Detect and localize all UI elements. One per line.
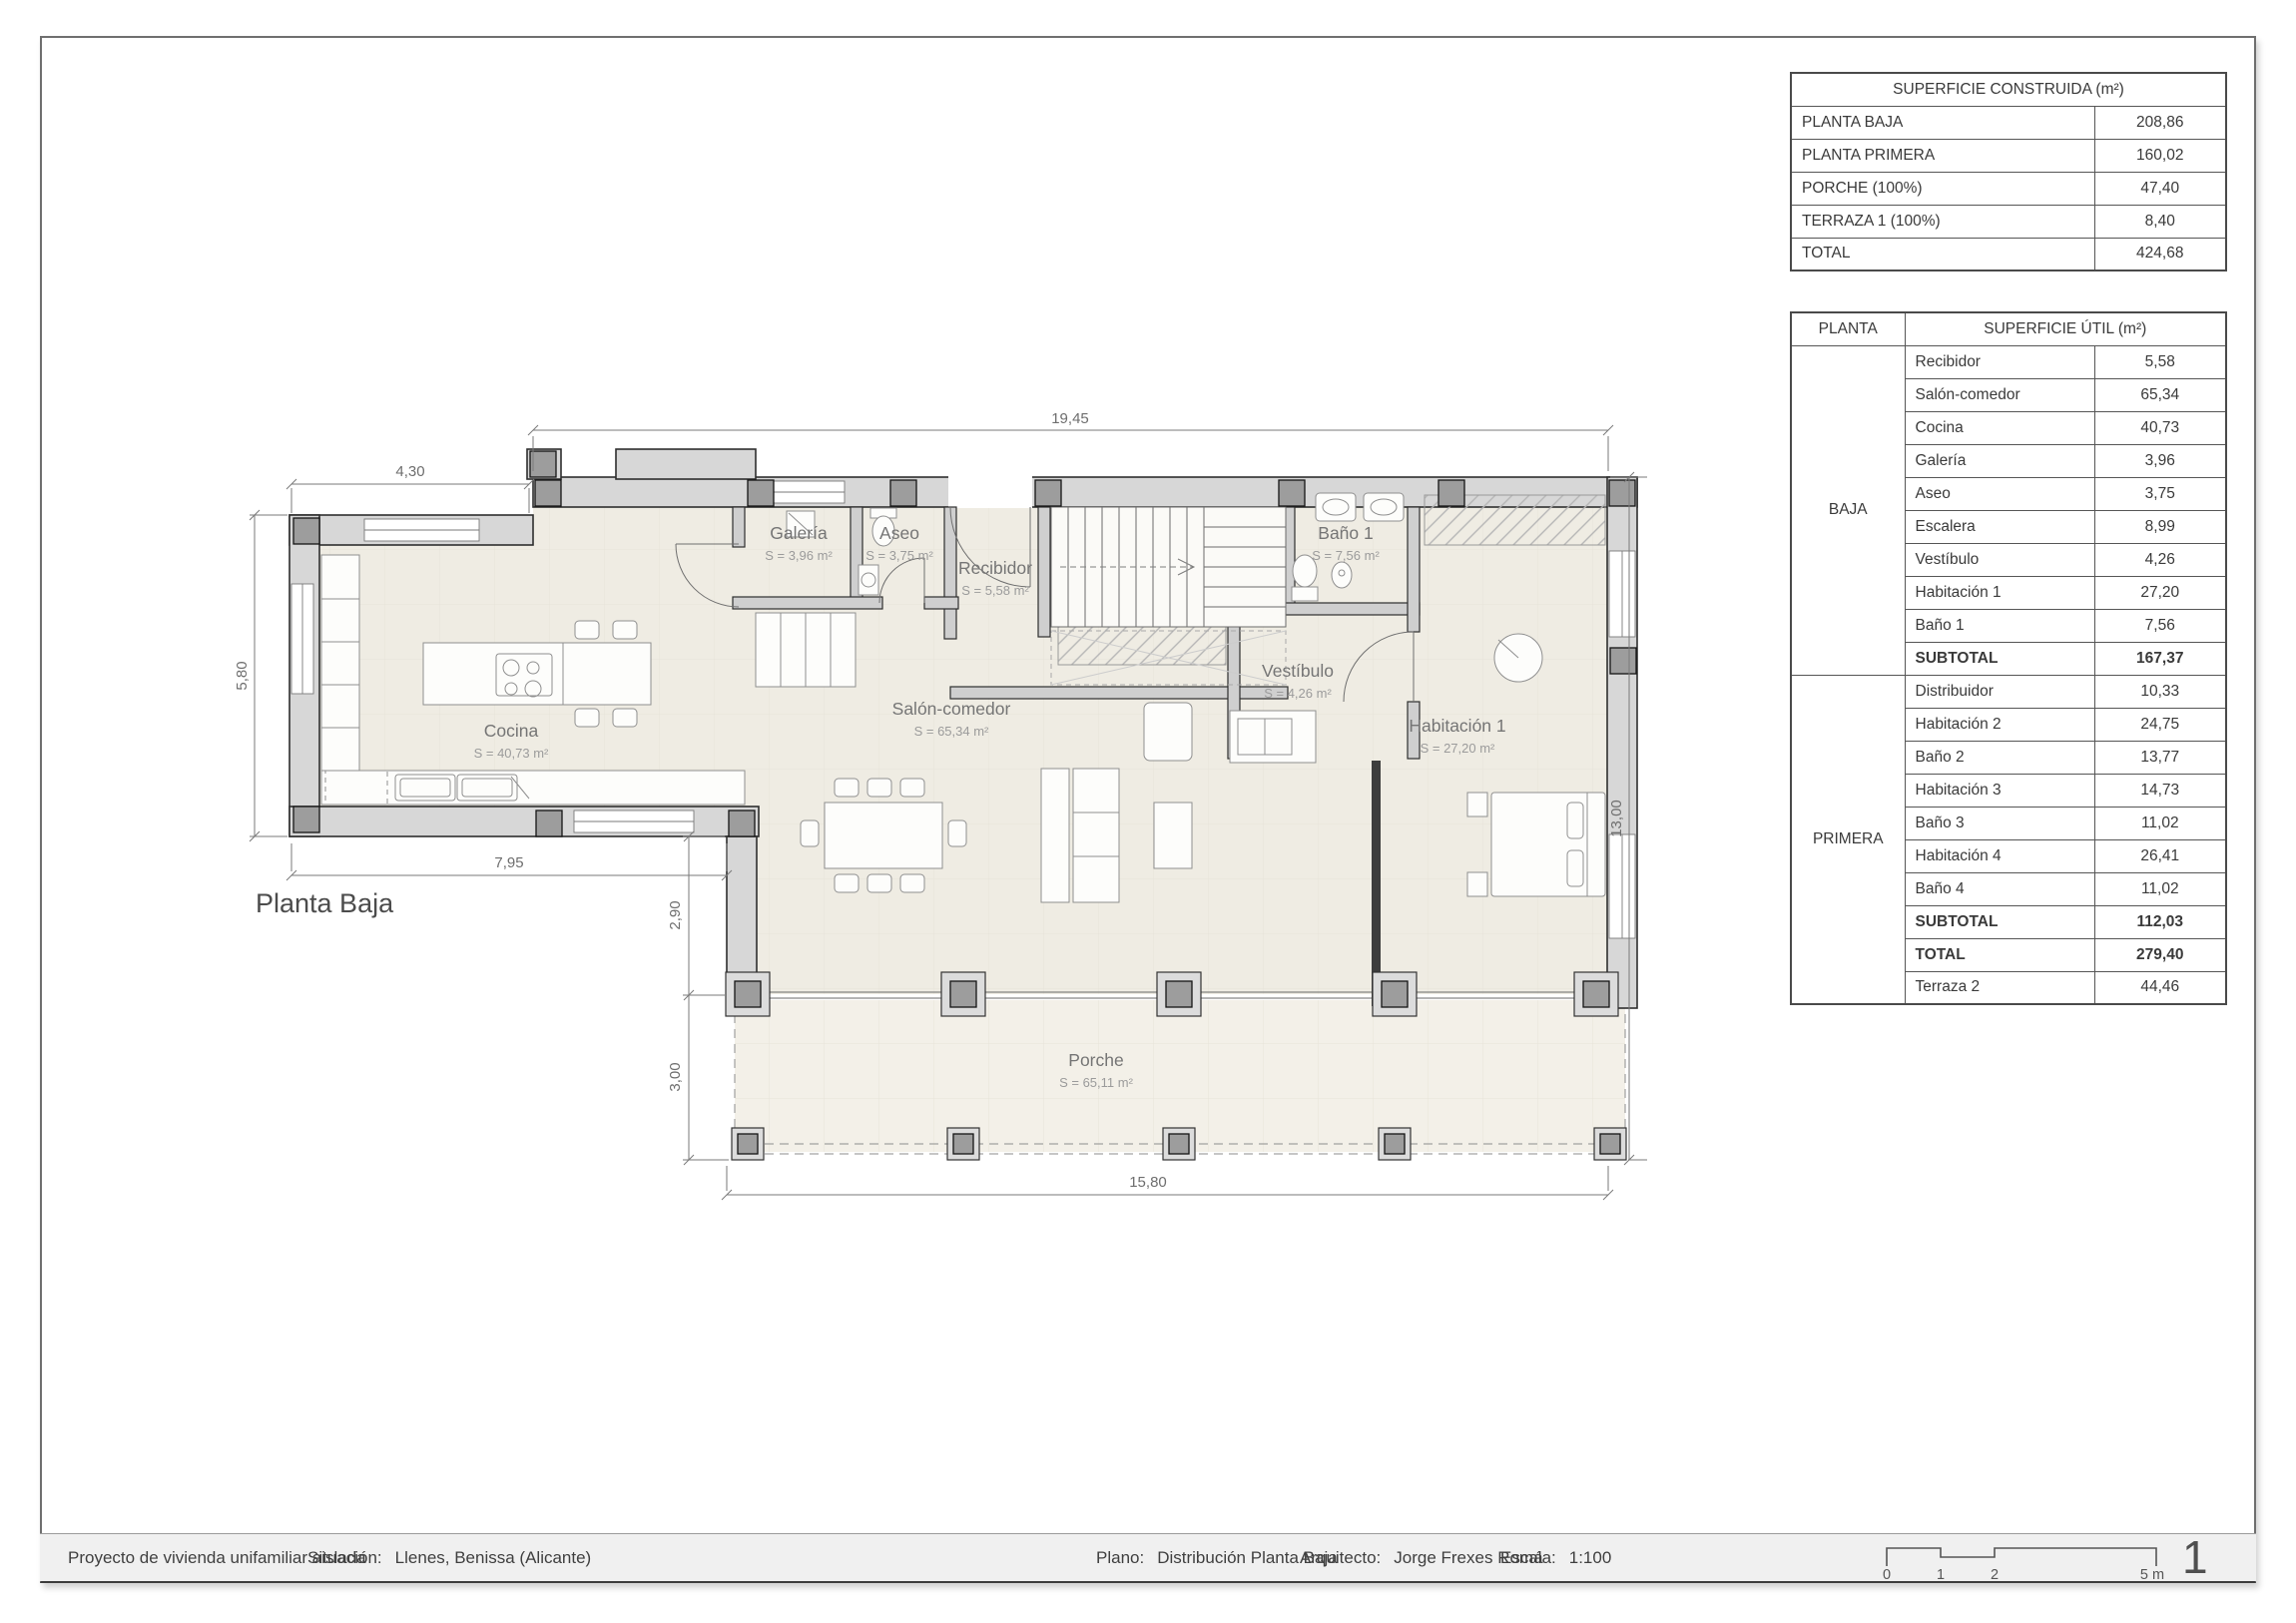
dim-left: 5,80	[234, 661, 251, 690]
dim-bottom-left: 7,95	[494, 854, 523, 871]
dim-left-mid: 2,90	[667, 900, 684, 929]
room-galeria: Galería	[770, 523, 828, 543]
planta-baja-cell: BAJA	[1791, 345, 1905, 675]
room-salon: Salón-comedor	[892, 699, 1011, 719]
situacion: Situación:Llenes, Benissa (Alicante)	[307, 1548, 591, 1568]
planta-primera-cell: PRIMERA	[1791, 675, 1905, 1004]
table-row: PLANTA BAJA208,86	[1791, 106, 2226, 139]
table-row: PRIMERADistribuidor10,33	[1791, 675, 2226, 708]
room-aseo: Aseo	[879, 523, 919, 543]
area-cocina: S = 40,73 m²	[474, 746, 549, 761]
room-bano1: Baño 1	[1318, 523, 1373, 543]
dim-top: 19,45	[1051, 410, 1089, 427]
table-row: PLANTASUPERFICIE ÚTIL (m²)	[1791, 312, 2226, 345]
dim-right: 13,00	[1608, 800, 1625, 837]
dim-left-lower: 3,00	[667, 1062, 684, 1091]
area-aseo: S = 3,75 m²	[865, 548, 933, 563]
table-title: SUPERFICIE CONSTRUIDA (m²)	[1791, 73, 2226, 106]
drawing-sheet: 19,45 4,30 7,95 15,80 5,80 2,90 3,00 13,…	[0, 0, 2296, 1623]
table-row: PORCHE (100%)47,40	[1791, 172, 2226, 205]
area-recibidor: S = 5,58 m²	[961, 583, 1029, 598]
floor-plan: 19,45 4,30 7,95 15,80 5,80 2,90 3,00 13,…	[0, 0, 1747, 1298]
sheet-number: 1	[2182, 1530, 2208, 1584]
table-row: BAJARecibidor5,58	[1791, 345, 2226, 378]
scale-tick-2: 2	[1991, 1567, 1999, 1582]
room-cocina: Cocina	[484, 721, 539, 741]
graphic-scale-bar: 0 1 2 5 m	[1875, 1536, 2174, 1582]
area-salon: S = 65,34 m²	[914, 724, 989, 739]
table-row: SUPERFICIE CONSTRUIDA (m²)	[1791, 73, 2226, 106]
table-superficie-construida: SUPERFICIE CONSTRUIDA (m²) PLANTA BAJA20…	[1790, 72, 2227, 271]
area-porche: S = 65,11 m²	[1059, 1075, 1133, 1090]
table-row: PLANTA PRIMERA160,02	[1791, 139, 2226, 172]
dim-bottom: 15,80	[1129, 1174, 1167, 1191]
area-habitacion1: S = 27,20 m²	[1421, 741, 1495, 756]
scale-tick-0: 0	[1883, 1567, 1891, 1582]
room-vestibulo: Vestíbulo	[1262, 661, 1334, 681]
room-recibidor: Recibidor	[958, 558, 1032, 578]
escala: Escala:1:100	[1500, 1548, 1611, 1568]
scale-tick-5m: 5 m	[2140, 1567, 2164, 1582]
area-galeria: S = 3,96 m²	[765, 548, 833, 563]
plan-title: Planta Baja	[256, 888, 394, 918]
table-row: TOTAL424,68	[1791, 238, 2226, 270]
title-block: Proyecto de vivienda unifamiliar aislada…	[40, 1533, 2256, 1581]
scale-tick-1: 1	[1937, 1567, 1945, 1582]
room-porche: Porche	[1068, 1050, 1123, 1070]
table-row: TERRAZA 1 (100%)8,40	[1791, 205, 2226, 238]
table-superficie-util: PLANTASUPERFICIE ÚTIL (m²) BAJARecibidor…	[1790, 311, 2227, 1005]
area-vestibulo: S = 4,26 m²	[1264, 686, 1332, 701]
sliding-door-panel	[1372, 761, 1381, 1006]
room-habitacion1: Habitación 1	[1409, 716, 1505, 736]
dim-left-upper: 4,30	[395, 463, 424, 480]
area-bano1: S = 7,56 m²	[1312, 548, 1380, 563]
